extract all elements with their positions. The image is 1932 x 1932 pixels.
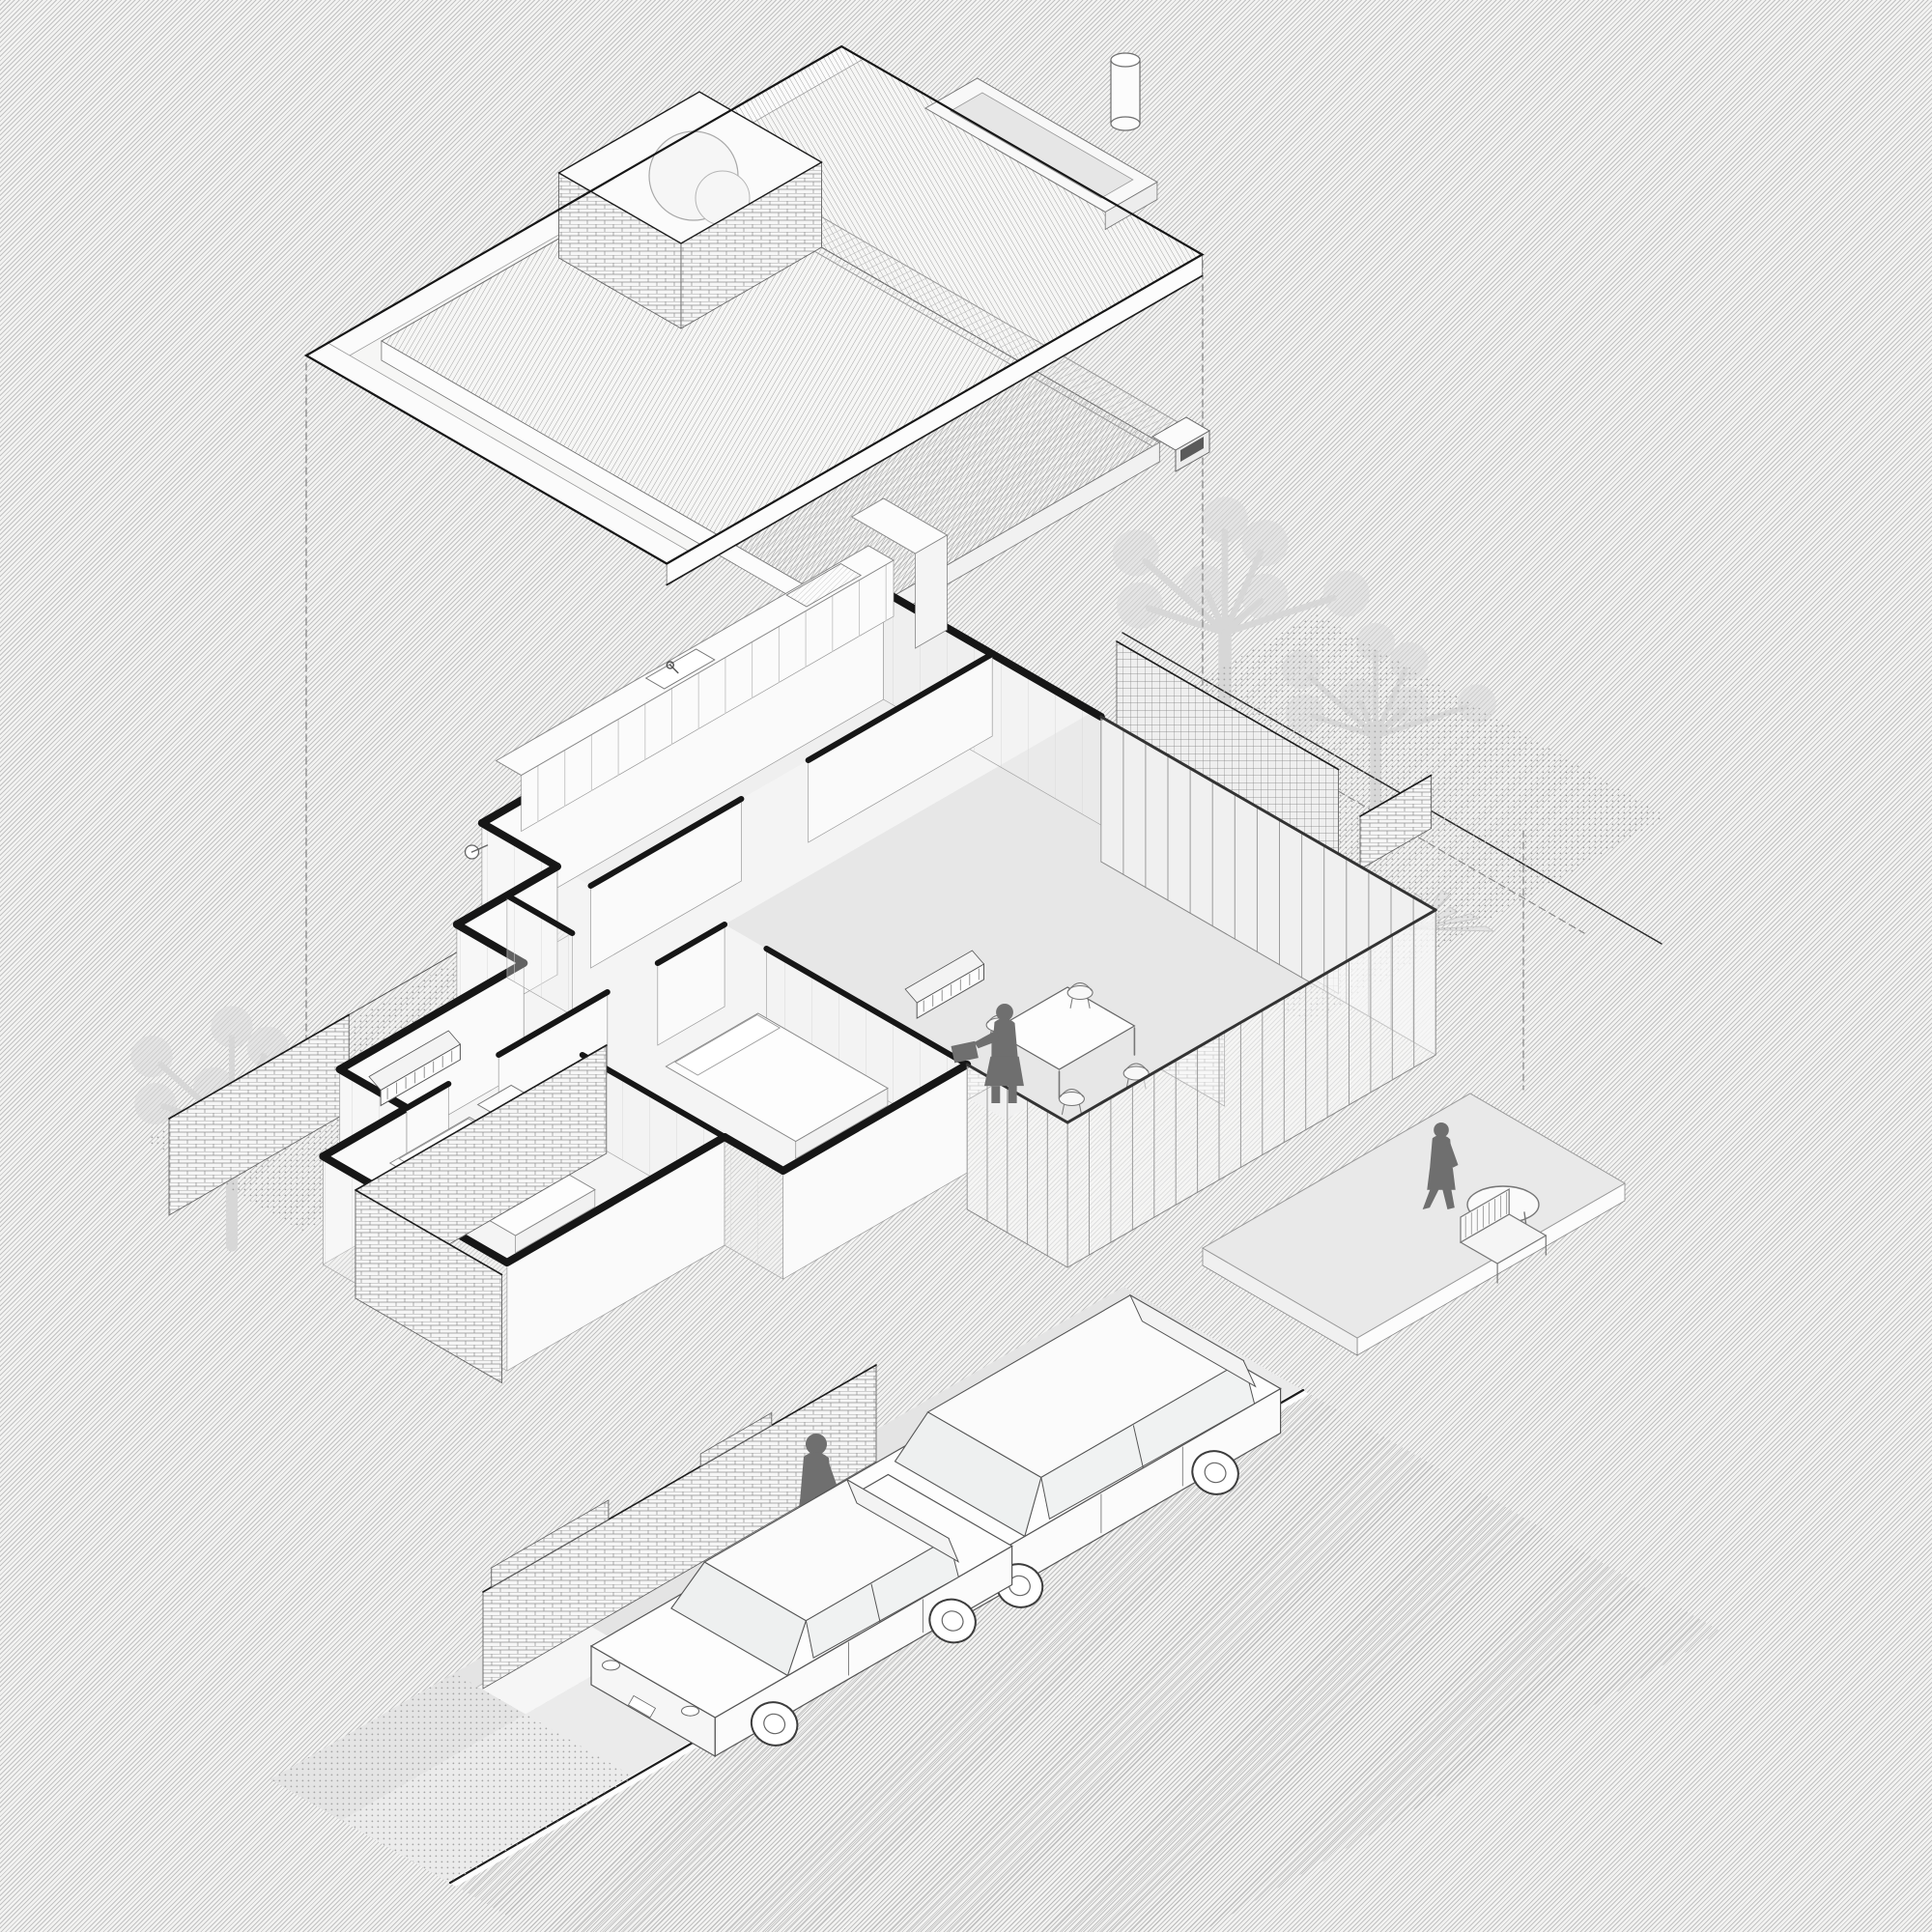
exploded-axonometric-house-diagram [0,0,1932,1932]
exploded-roof-assembly [306,46,1209,636]
chimney [1111,53,1140,130]
drawing-canvas [0,0,1932,1932]
car-hatchback-headlight [603,1661,620,1670]
